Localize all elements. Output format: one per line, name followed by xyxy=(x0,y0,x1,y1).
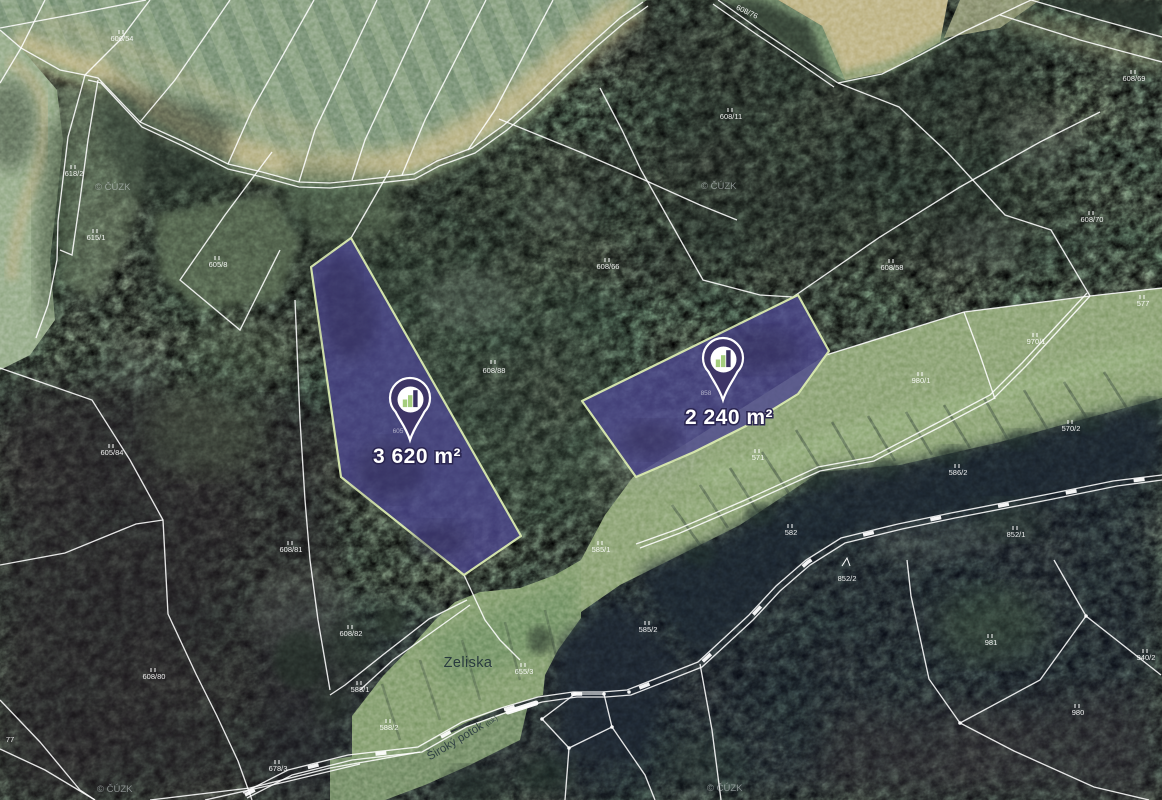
svg-text:3 620 m²: 3 620 m² xyxy=(373,445,461,468)
svg-text:608/70: 608/70 xyxy=(1081,215,1104,224)
svg-text:© ČÚZK: © ČÚZK xyxy=(701,181,737,192)
svg-text:570/2: 570/2 xyxy=(1062,424,1081,433)
svg-text:608/80: 608/80 xyxy=(143,672,166,681)
svg-text:588/1: 588/1 xyxy=(351,685,370,694)
svg-text:618/2: 618/2 xyxy=(65,169,84,178)
svg-text:980: 980 xyxy=(1072,708,1085,717)
svg-text:940/2: 940/2 xyxy=(1137,653,1156,662)
svg-text:608/58: 608/58 xyxy=(881,263,904,272)
svg-text:678/3: 678/3 xyxy=(269,764,288,773)
svg-text:858: 858 xyxy=(701,390,712,397)
svg-text:608/88: 608/88 xyxy=(483,366,506,375)
svg-text:608/81: 608/81 xyxy=(280,545,303,554)
svg-text:980/1: 980/1 xyxy=(912,376,931,385)
svg-text:577: 577 xyxy=(1137,299,1150,308)
svg-text:© ČÚZK: © ČÚZK xyxy=(707,783,743,794)
svg-text:605/84: 605/84 xyxy=(101,448,124,457)
svg-text:605/8: 605/8 xyxy=(209,260,228,269)
svg-text:852/2: 852/2 xyxy=(838,574,857,583)
svg-text:970/1: 970/1 xyxy=(1027,337,1046,346)
svg-text:© ČÚZK: © ČÚZK xyxy=(97,784,133,795)
svg-text:608/82: 608/82 xyxy=(340,629,363,638)
svg-text:Zeliska: Zeliska xyxy=(444,655,493,671)
svg-text:586/2: 586/2 xyxy=(949,468,968,477)
svg-text:608/66: 608/66 xyxy=(597,262,620,271)
svg-text:585/1: 585/1 xyxy=(592,545,611,554)
svg-text:2 240 m²: 2 240 m² xyxy=(685,406,773,429)
svg-text:77: 77 xyxy=(6,735,14,744)
svg-text:585/2: 585/2 xyxy=(639,625,658,634)
svg-text:582: 582 xyxy=(785,528,798,537)
svg-text:606/54: 606/54 xyxy=(111,34,134,43)
svg-text:852/1: 852/1 xyxy=(1007,530,1026,539)
svg-text:608/11: 608/11 xyxy=(720,112,742,121)
svg-text:571: 571 xyxy=(752,453,765,462)
svg-text:981: 981 xyxy=(985,638,998,647)
svg-text:615/1: 615/1 xyxy=(87,233,106,242)
svg-text:608/69: 608/69 xyxy=(1123,74,1146,83)
svg-text:655/3: 655/3 xyxy=(515,667,534,676)
svg-text:605: 605 xyxy=(393,428,404,435)
svg-text:© ČÚZK: © ČÚZK xyxy=(95,182,131,193)
svg-text:588/2: 588/2 xyxy=(380,723,399,732)
